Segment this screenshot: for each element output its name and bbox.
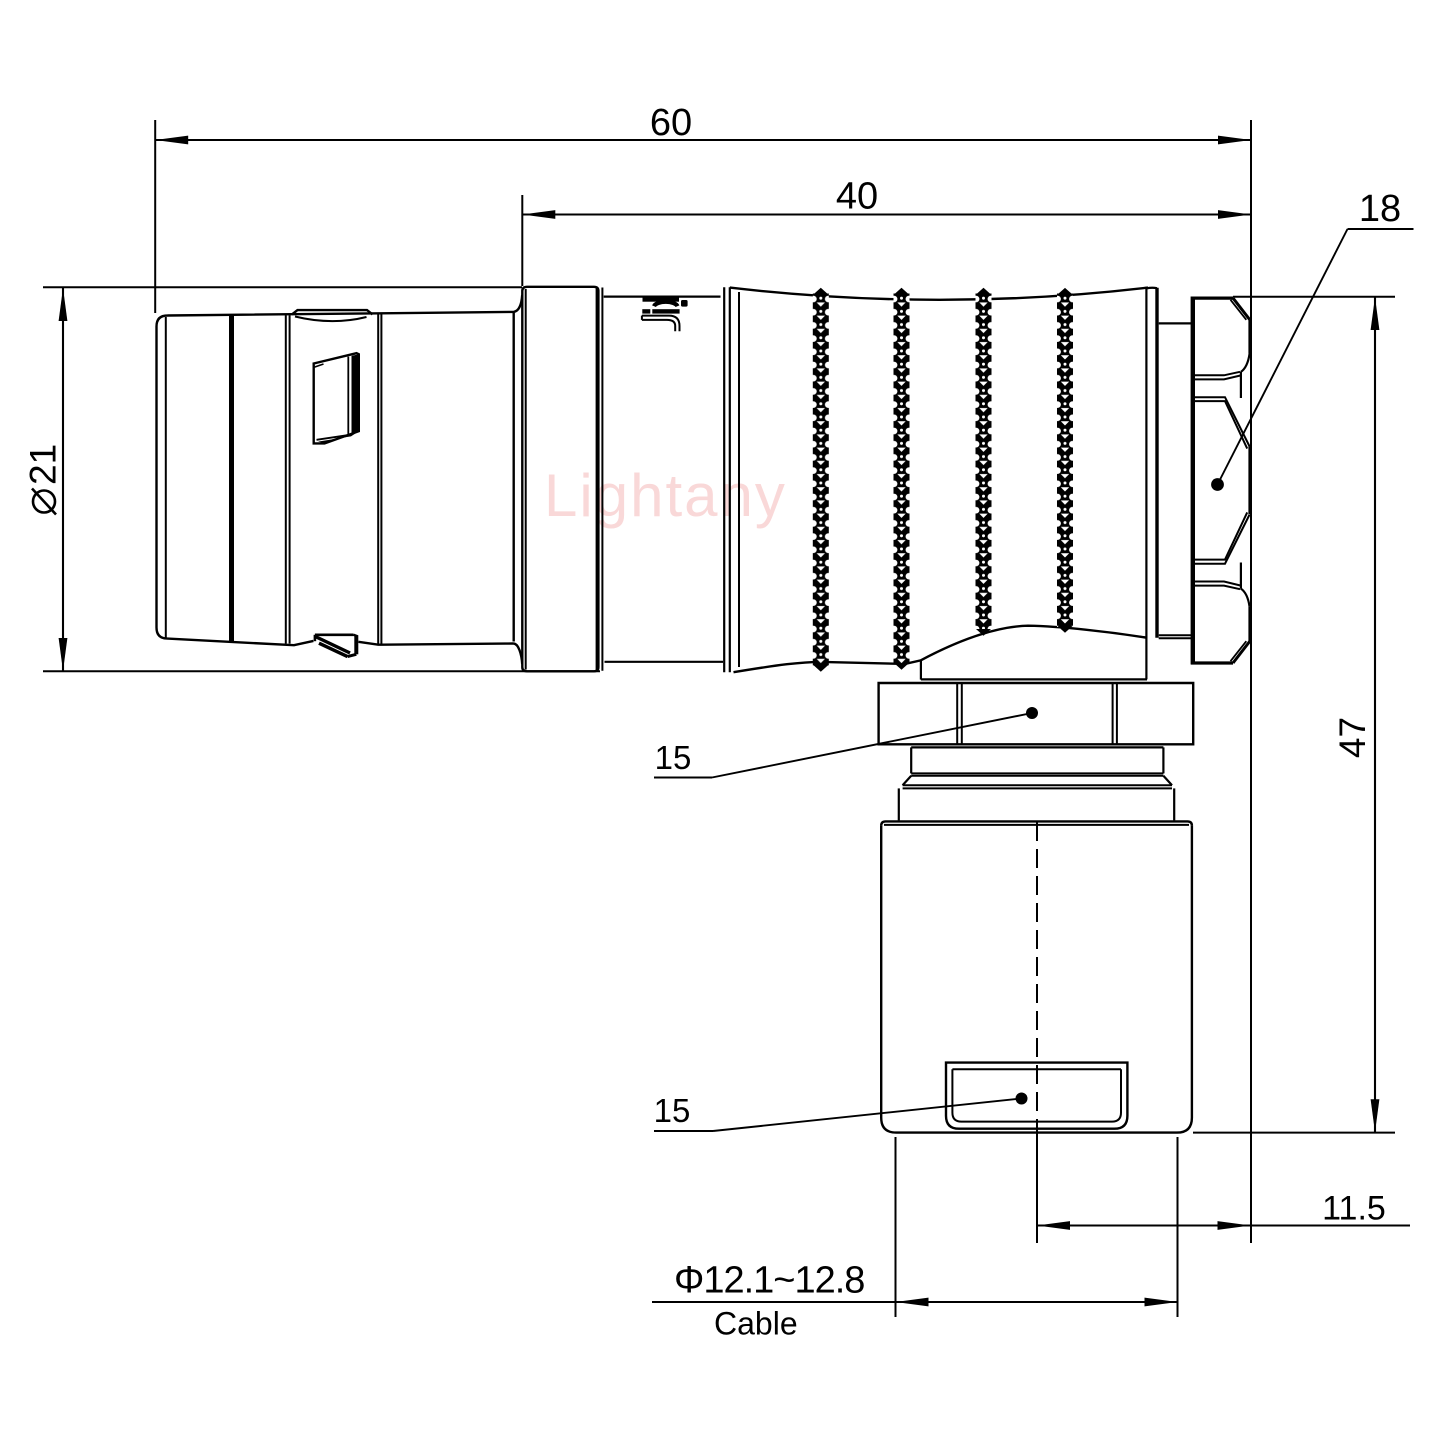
- svg-text:60: 60: [650, 102, 692, 144]
- svg-text:18: 18: [1359, 188, 1401, 230]
- svg-text:15: 15: [655, 739, 692, 776]
- svg-text:Cable: Cable: [714, 1306, 798, 1342]
- svg-text:40: 40: [836, 176, 878, 218]
- svg-text:15: 15: [654, 1092, 691, 1129]
- svg-text:21: 21: [23, 444, 64, 485]
- svg-text:Lightany: Lightany: [544, 462, 787, 529]
- svg-text:Φ12.1~12.8: Φ12.1~12.8: [674, 1260, 864, 1302]
- svg-text:47: 47: [1332, 717, 1373, 758]
- svg-text:11.5: 11.5: [1322, 1190, 1386, 1228]
